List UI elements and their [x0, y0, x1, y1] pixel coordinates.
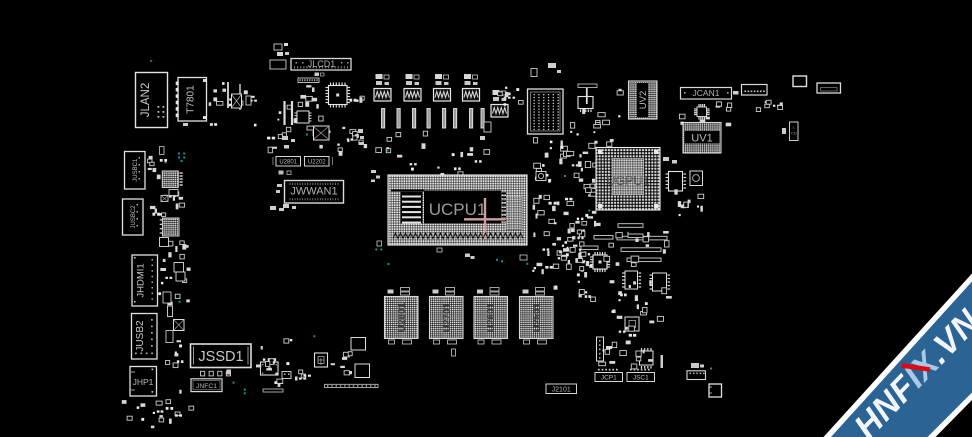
svg-text:JSSD1: JSSD1 — [198, 349, 243, 365]
svg-text:JHP1: JHP1 — [133, 377, 154, 387]
svg-text:U2701: U2701 — [442, 302, 453, 332]
svg-text:J2101: J2101 — [552, 386, 571, 393]
svg-text:JUSB2: JUSB2 — [135, 320, 146, 352]
svg-text:UGPU1: UGPU1 — [606, 174, 649, 188]
svg-text:U2601: U2601 — [486, 302, 497, 332]
svg-text:JWWAN1: JWWAN1 — [290, 186, 337, 198]
svg-text:U2501: U2501 — [532, 302, 543, 332]
svg-text:JHDMI1: JHDMI1 — [136, 263, 147, 297]
svg-text:U2202: U2202 — [308, 159, 326, 165]
svg-text:CD: CD — [791, 131, 797, 136]
svg-text:JSC1: JSC1 — [633, 374, 649, 381]
svg-text:UV1: UV1 — [691, 133, 712, 145]
svg-text:UV2: UV2 — [638, 91, 649, 109]
svg-text:T7801: T7801 — [186, 85, 197, 114]
svg-text:JNFC1: JNFC1 — [196, 383, 217, 390]
svg-text:JLCD1: JLCD1 — [308, 59, 336, 69]
svg-text:UCPU1: UCPU1 — [429, 200, 487, 219]
svg-text:JCAN1: JCAN1 — [693, 88, 720, 98]
svg-text:U2801: U2801 — [397, 302, 408, 332]
svg-text:JUSBC1: JUSBC1 — [133, 158, 139, 182]
svg-text:JLAN2: JLAN2 — [140, 83, 152, 118]
svg-text:U2801: U2801 — [279, 159, 297, 165]
svg-text:JCP1: JCP1 — [601, 374, 617, 381]
svg-text:JUSBC2: JUSBC2 — [131, 205, 137, 229]
